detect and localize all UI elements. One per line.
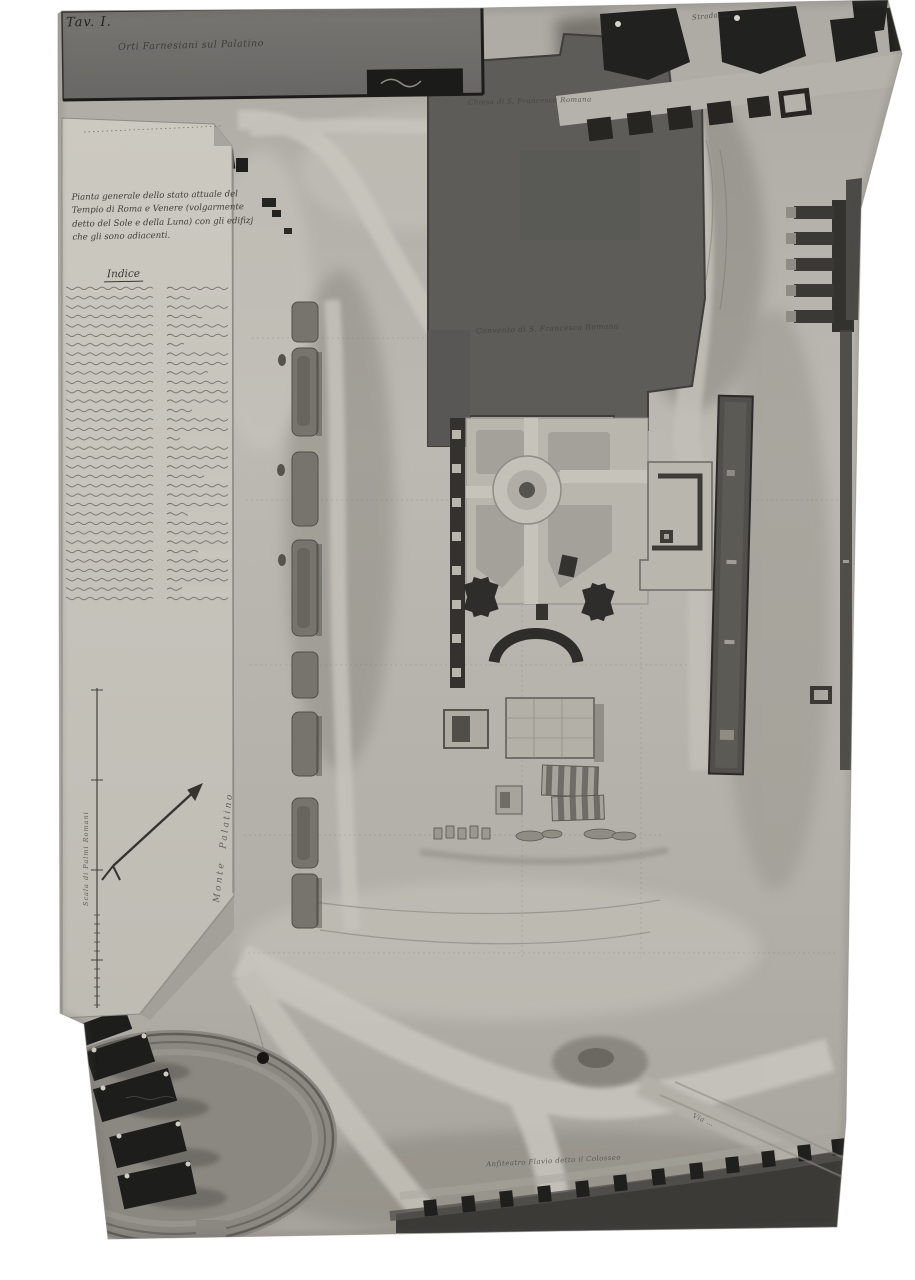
photographed-site-plan: Tav. I. Orti Farnesiani sul Palatino Pia… xyxy=(0,0,915,1280)
panel-inset xyxy=(367,68,463,95)
well-dot xyxy=(257,1052,269,1064)
annex-terrace xyxy=(640,462,712,590)
title-panel xyxy=(62,6,483,100)
crenellated-wall xyxy=(450,418,465,688)
cloister-fountain xyxy=(493,456,561,524)
index-sheet xyxy=(62,118,234,1020)
plan-artwork xyxy=(0,0,915,1280)
